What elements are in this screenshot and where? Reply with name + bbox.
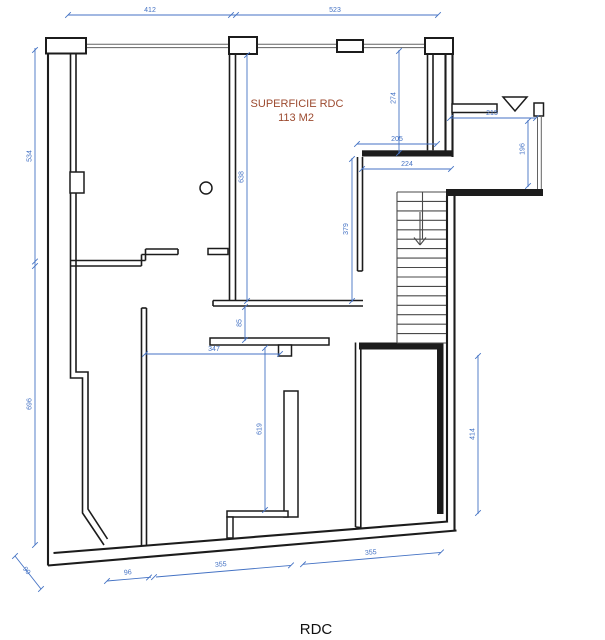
- ledge-wall: [227, 511, 288, 517]
- dimension-534: 534: [27, 47, 38, 269]
- door-jamb-stub: [208, 249, 228, 255]
- pilaster: [70, 172, 84, 193]
- low-wall-stub: [279, 345, 292, 356]
- area-label: SUPERFICIE RDC 113 M2: [251, 98, 344, 124]
- dimension-412: 412: [65, 7, 239, 18]
- dimension-224: 224: [359, 161, 454, 172]
- staircase: [397, 192, 446, 343]
- svg-text:638: 638: [239, 171, 246, 183]
- stair-direction-arrow-icon: [414, 212, 426, 245]
- area-label-line1: SUPERFICIE RDC: [251, 98, 344, 110]
- entry-door-triangle-icon: [503, 97, 527, 111]
- svg-text:96: 96: [124, 569, 133, 577]
- svg-text:205: 205: [391, 136, 403, 143]
- stair-enclosure-wall: [359, 343, 444, 515]
- dimension-696: 696: [27, 263, 38, 548]
- svg-text:196: 196: [520, 143, 527, 155]
- entry-bottom-wall: [446, 189, 543, 196]
- svg-text:85: 85: [237, 319, 244, 327]
- svg-text:274: 274: [391, 92, 398, 104]
- pier-top-left: [46, 38, 86, 54]
- plan-title: RDC: [300, 621, 333, 638]
- area-label-line2: 113 M2: [278, 112, 314, 124]
- dimension-355-left: 355: [156, 561, 294, 577]
- pier-top-middle-left: [229, 37, 257, 54]
- entry-post: [534, 103, 544, 116]
- svg-text:379: 379: [343, 223, 350, 235]
- floor-plan-canvas: 412 523 534 696 638 274 205 22: [0, 0, 605, 640]
- svg-text:523: 523: [329, 7, 341, 14]
- dimension-196: 196: [520, 118, 531, 189]
- svg-text:224: 224: [401, 161, 413, 168]
- ledge-wall-stub: [227, 517, 233, 538]
- svg-text:355: 355: [215, 561, 227, 569]
- dimension-355-right: 355: [300, 549, 444, 567]
- svg-text:215: 215: [486, 110, 498, 117]
- floor-plan-drawing: 412 523 534 696 638 274 205 22: [0, 0, 605, 640]
- svg-text:355: 355: [365, 549, 377, 557]
- low-wall: [210, 338, 329, 345]
- dimension-347: 347: [142, 346, 283, 357]
- svg-text:414: 414: [470, 428, 477, 440]
- hall-top-wall: [362, 150, 453, 156]
- svg-text:534: 534: [27, 150, 34, 162]
- svg-text:619: 619: [257, 423, 264, 435]
- dimension-523: 523: [233, 7, 441, 18]
- dimension-85: 85: [237, 304, 248, 343]
- svg-text:412: 412: [144, 7, 156, 14]
- pier-top-right: [425, 38, 453, 54]
- dimension-638: 638: [239, 52, 250, 304]
- svg-text:347: 347: [208, 346, 220, 353]
- partition-wall: [284, 391, 298, 517]
- svg-text:696: 696: [27, 398, 34, 410]
- interior-walls: [70, 54, 453, 546]
- column: [200, 182, 212, 194]
- window-band-right: [538, 116, 542, 190]
- dimension-619: 619: [257, 345, 268, 513]
- dimension-379: 379: [343, 156, 355, 304]
- dimension-414: 414: [470, 353, 481, 516]
- dimension-96: 96: [104, 569, 157, 584]
- dimension-90: 90: [12, 553, 44, 592]
- pier-top-middle: [337, 40, 363, 52]
